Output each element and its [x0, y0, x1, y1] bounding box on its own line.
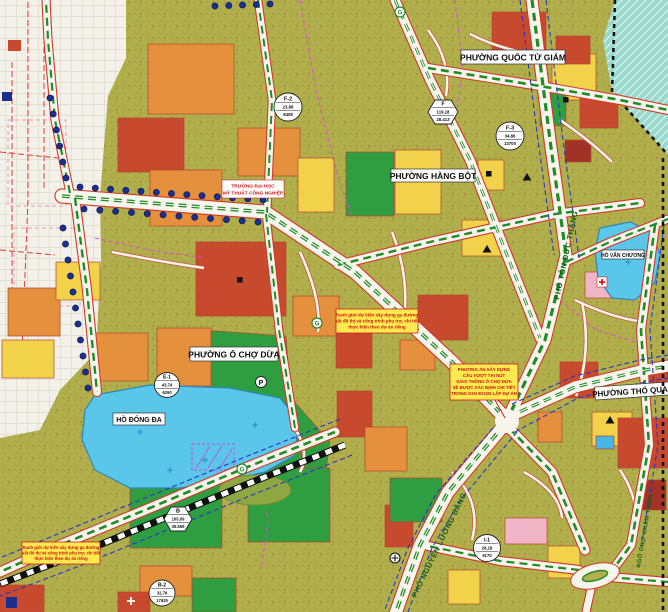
tree-dot: [192, 214, 198, 220]
parcel-marker-f3: F-3 34,86 13700: [496, 122, 524, 150]
parcel: [2, 340, 54, 378]
medical-cross-icon: [597, 277, 607, 287]
tree-dot: [72, 305, 78, 311]
parcel: [346, 152, 394, 216]
tree-dot: [77, 184, 83, 190]
tree-dot: [65, 257, 71, 263]
tree-dot: [214, 194, 220, 200]
parcel-id: I-1: [484, 538, 490, 544]
tree-dot: [207, 215, 213, 221]
tree-dot: [57, 143, 63, 149]
parcel: [448, 570, 480, 604]
parcel-marker-f: F 119,18 28.413: [428, 100, 458, 124]
parcel-marker-i1: I-1 26,18 9170: [474, 535, 501, 562]
tree-dot: [67, 273, 73, 279]
legend-chip-red: [8, 40, 21, 51]
parcel: [96, 333, 148, 381]
svg-text:GIAO THÔNG Ô CHỢ DỪA: GIAO THÔNG Ô CHỢ DỪA: [456, 379, 512, 384]
parcel: [298, 158, 334, 212]
tree-dot: [107, 186, 113, 192]
tree-dot: [253, 1, 259, 7]
station-marker: G: [315, 322, 320, 328]
zoning-map-viewport: G G G G P F-2 23,88 8408 F 119,18 28.413…: [0, 0, 668, 612]
zoning-map-canvas[interactable]: G G G G P F-2 23,88 8408 F 119,18 28.413…: [0, 0, 668, 612]
svg-text:CẦU VƯỢT TẠI NÚT: CẦU VƯỢT TẠI NÚT: [463, 373, 506, 378]
parcel-area: 32,76: [157, 591, 168, 596]
lake-label-ho-van-chuong: HỒ VĂN CHƯƠNG: [601, 250, 645, 259]
svg-text:SẼ ĐƯỢC XÁC ĐỊNH CHI TIẾT: SẼ ĐƯỢC XÁC ĐỊNH CHI TIẾT: [453, 385, 516, 390]
tree-dot: [160, 212, 166, 218]
parcel-area: 105,09: [172, 517, 185, 522]
parcel: [505, 518, 547, 544]
parcel-population: 13700: [504, 141, 517, 146]
tree-dot: [70, 289, 76, 295]
svg-text:sắt đô thị và công trình phụ t: sắt đô thị và công trình phụ trợ, chi ti…: [22, 551, 100, 556]
parcel-marker-e1: E-1 43,74 6290: [155, 373, 180, 398]
tree-dot: [184, 192, 190, 198]
svg-text:HỒ VĂN CHƯƠNG: HỒ VĂN CHƯƠNG: [601, 252, 645, 259]
tree-dot: [97, 207, 103, 213]
parcel-population: 17625: [156, 598, 168, 603]
tree-dot: [255, 219, 261, 225]
tree-dot: [128, 209, 134, 215]
tree-dot: [80, 353, 86, 359]
parcel: [6, 597, 17, 608]
tree-dot: [75, 321, 81, 327]
university-label: TRƯỜNG ĐẠI HỌC MỸ THUẬT CÔNG NGHIỆP: [222, 180, 284, 198]
note-metro-station-2: Ranh giới dự kiến xây dựng ga đường sắt …: [22, 542, 101, 564]
parcel-id: F-2: [284, 97, 292, 103]
tree-dot: [47, 95, 53, 101]
legend-chip-blue: [2, 92, 12, 101]
tree-dot: [138, 188, 144, 194]
tree-dot: [60, 225, 66, 231]
parcel-area: 119,18: [437, 110, 451, 115]
tree-dot: [199, 193, 205, 199]
parcel: [565, 140, 591, 162]
lake-label-ho-dong-da: HỒ ĐỐNG ĐA: [113, 413, 165, 425]
tree-dot: [267, 1, 273, 7]
tree-dot: [92, 185, 98, 191]
tree-dot: [50, 111, 56, 117]
public-facility-icon: [563, 97, 569, 103]
parcel-id: F-3: [506, 126, 514, 132]
tree-dot: [81, 206, 87, 212]
tree-dot: [239, 218, 245, 224]
svg-text:PHƯỜNG Ô CHỢ DỪA: PHƯỜNG Ô CHỢ DỪA: [188, 349, 279, 360]
o-cho-dua-junction: [495, 409, 519, 433]
parcel: [538, 412, 562, 442]
parcel-area: 23,88: [283, 105, 294, 110]
tree-dot: [239, 2, 245, 8]
parcel-population: 35.559: [172, 524, 185, 529]
parcel: [8, 288, 60, 336]
parcel-population: 6290: [162, 390, 172, 395]
parcel-population: 8408: [283, 112, 293, 117]
tree-dot: [82, 369, 88, 375]
svg-text:Ranh giới dự kiến xây dựng ga: Ranh giới dự kiến xây dựng ga đường: [336, 312, 419, 318]
svg-text:PHƯỜNG HÀNG BỘT: PHƯỜNG HÀNG BỘT: [390, 170, 477, 181]
station-marker: G: [398, 11, 403, 17]
note-metro-station-1: Ranh giới dự kiến xây dựng ga đường sắt …: [335, 309, 419, 333]
parcel: [596, 436, 614, 449]
svg-text:PHƯỜNG QUỐC TỬ GIÁM: PHƯỜNG QUỐC TỬ GIÁM: [460, 52, 566, 63]
tree-dot: [223, 217, 229, 223]
parcel-area: 26,18: [482, 546, 493, 551]
station-marker: G: [240, 468, 245, 474]
tree-dot: [60, 159, 66, 165]
parcel: [192, 578, 236, 612]
tree-dot: [77, 337, 83, 343]
tree-dot: [62, 241, 68, 247]
parcel: [148, 44, 234, 114]
parcel-population: 28.413: [436, 117, 450, 122]
parcel-marker-b2: B-2 32,76 17625: [149, 580, 175, 606]
svg-text:sắt đô thị và công trình phụ t: sắt đô thị và công trình phụ trợ, chi ti…: [335, 318, 419, 324]
svg-text:Ranh giới dự kiến xây dựng ga: Ranh giới dự kiến xây dựng ga đường: [23, 545, 100, 550]
svg-text:thực hiện theo dự án riêng: thực hiện theo dự án riêng: [34, 556, 88, 561]
parcel: [118, 118, 184, 172]
tree-dot: [85, 385, 91, 391]
tree-dot: [53, 127, 59, 133]
parcel-hospital: [118, 592, 150, 612]
public-facility-icon: [486, 171, 492, 177]
tree-dot: [176, 213, 182, 219]
public-facility-icon: [237, 277, 243, 283]
tree-dot: [113, 208, 119, 214]
svg-text:thực hiện theo dự án riêng: thực hiện theo dự án riêng: [348, 325, 406, 330]
svg-text:TRONG GIAI ĐOẠN LẬP DỰ ÁN: TRONG GIAI ĐOẠN LẬP DỰ ÁN: [451, 391, 517, 396]
metro-node-icon: [390, 553, 400, 563]
ward-label-o-cho-dua: PHƯỜNG Ô CHỢ DỪA: [188, 347, 279, 361]
tree-dot: [212, 3, 218, 9]
parcel-population: 9170: [482, 553, 492, 558]
parcel-id: B-2: [158, 583, 166, 589]
parcel-id: E-1: [163, 375, 171, 381]
parcel: [56, 262, 100, 300]
tree-dot: [123, 187, 129, 193]
tree-dot: [226, 2, 232, 8]
parcel-marker-f2: F-2 23,88 8408: [274, 93, 302, 121]
tree-dot: [63, 175, 69, 181]
parcel-id: B: [176, 509, 180, 515]
parcel-area: 34,86: [505, 134, 516, 139]
ward-label-hang-bot: PHƯỜNG HÀNG BỘT: [390, 169, 477, 182]
ward-label-quoc-tu-giam: PHƯỜNG QUỐC TỬ GIÁM: [460, 50, 566, 64]
parcel: [365, 427, 407, 471]
parking-marker: P: [259, 380, 264, 387]
tree-dot: [168, 190, 174, 196]
tree-dot: [153, 189, 159, 195]
tree-dot: [144, 211, 150, 217]
svg-text:PHƯƠNG ÁN XÂY DỰNG: PHƯƠNG ÁN XÂY DỰNG: [458, 367, 511, 372]
parcel-area: 43,74: [162, 383, 173, 388]
